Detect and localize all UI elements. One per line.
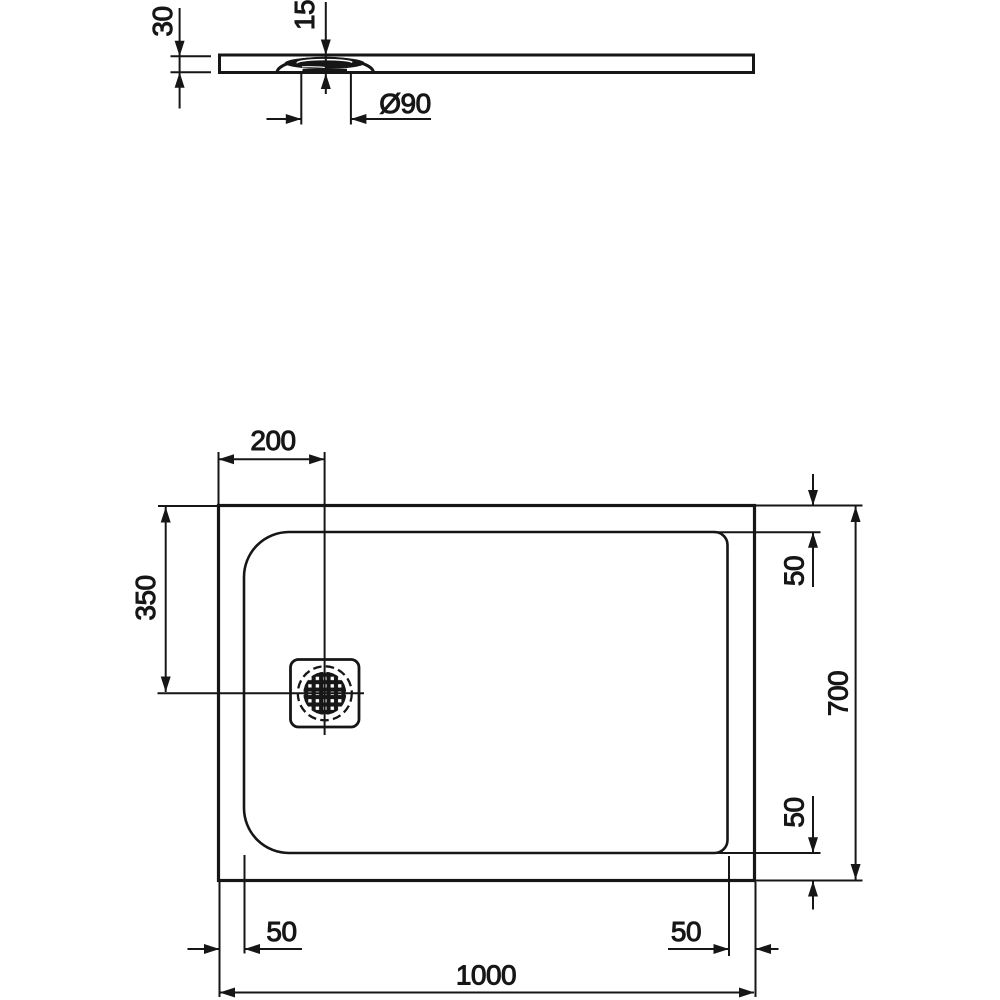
- svg-text:50: 50: [266, 916, 296, 947]
- svg-text:1000: 1000: [456, 960, 516, 991]
- svg-text:200: 200: [250, 425, 295, 456]
- svg-text:15: 15: [289, 0, 320, 30]
- svg-text:30: 30: [147, 6, 178, 36]
- svg-text:50: 50: [671, 916, 701, 947]
- svg-text:700: 700: [823, 671, 854, 716]
- svg-text:50: 50: [779, 556, 810, 586]
- svg-text:350: 350: [130, 575, 161, 620]
- svg-text:Ø90: Ø90: [379, 88, 430, 119]
- svg-text:50: 50: [779, 797, 810, 827]
